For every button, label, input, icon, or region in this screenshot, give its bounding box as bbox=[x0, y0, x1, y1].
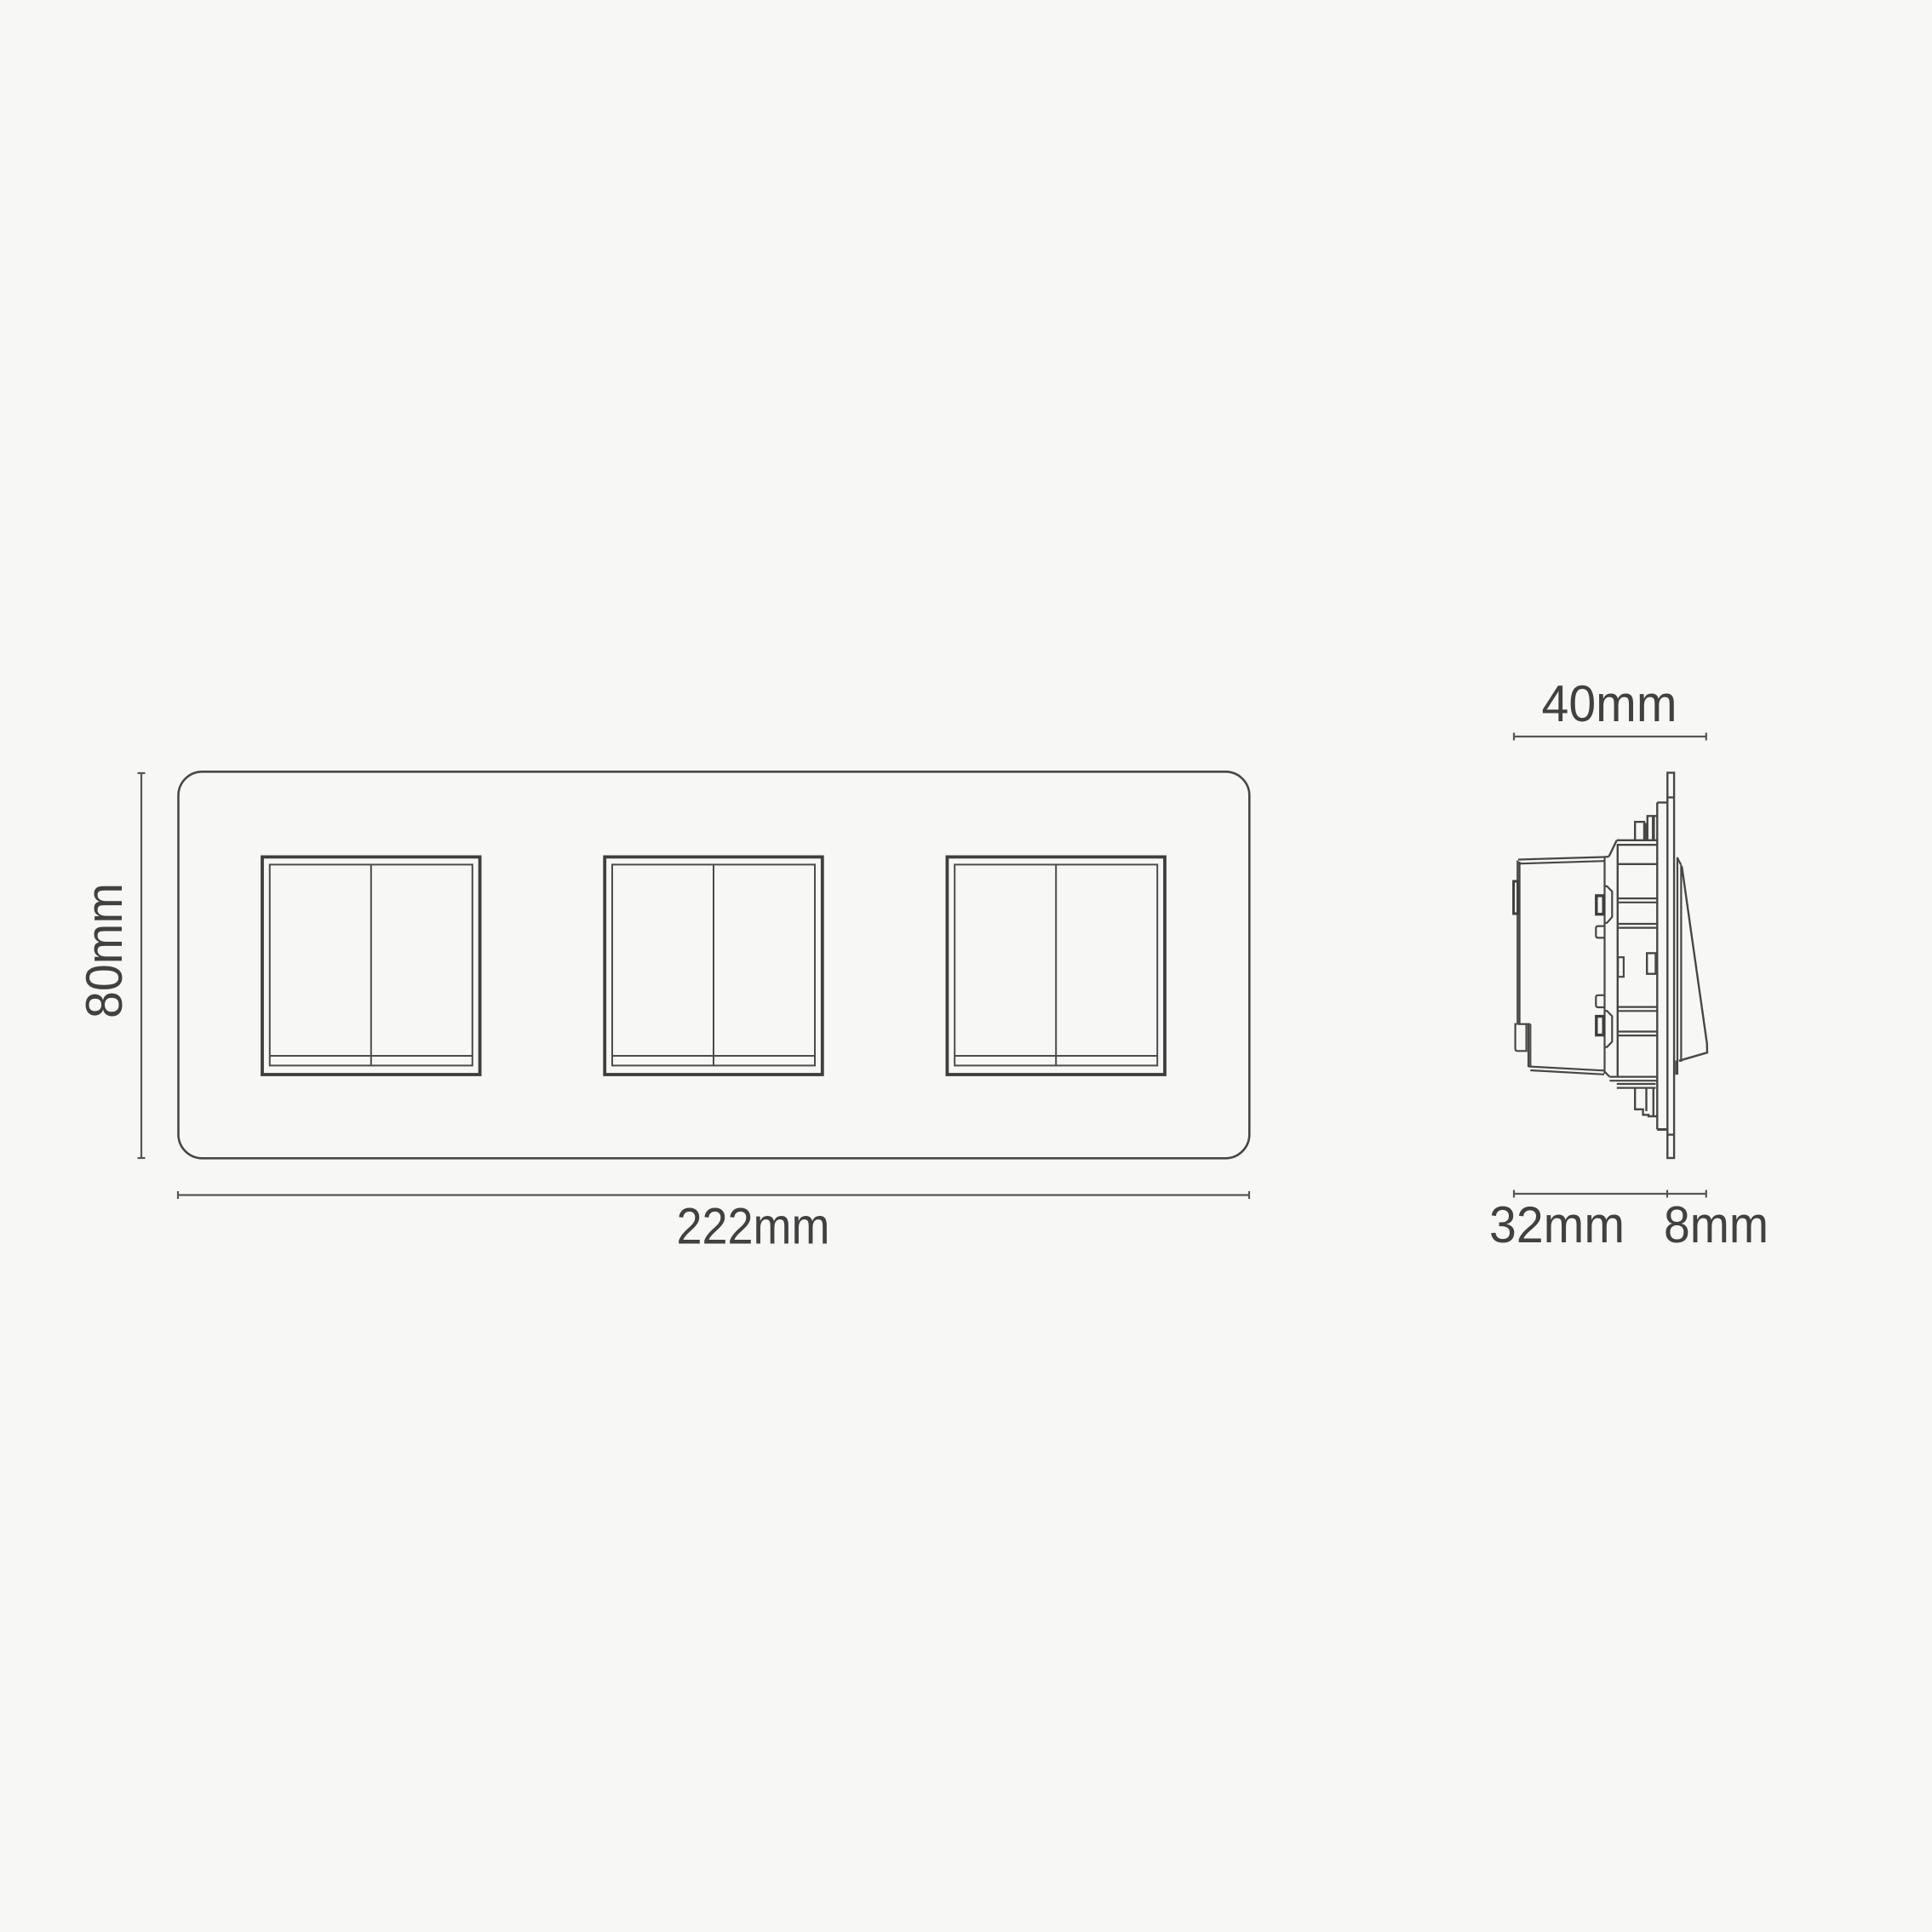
svg-text:8mm: 8mm bbox=[1664, 1196, 1769, 1253]
svg-text:222mm: 222mm bbox=[677, 1198, 830, 1255]
svg-text:40mm: 40mm bbox=[1542, 675, 1677, 732]
svg-text:80mm: 80mm bbox=[76, 883, 133, 1018]
svg-text:32mm: 32mm bbox=[1489, 1196, 1625, 1253]
